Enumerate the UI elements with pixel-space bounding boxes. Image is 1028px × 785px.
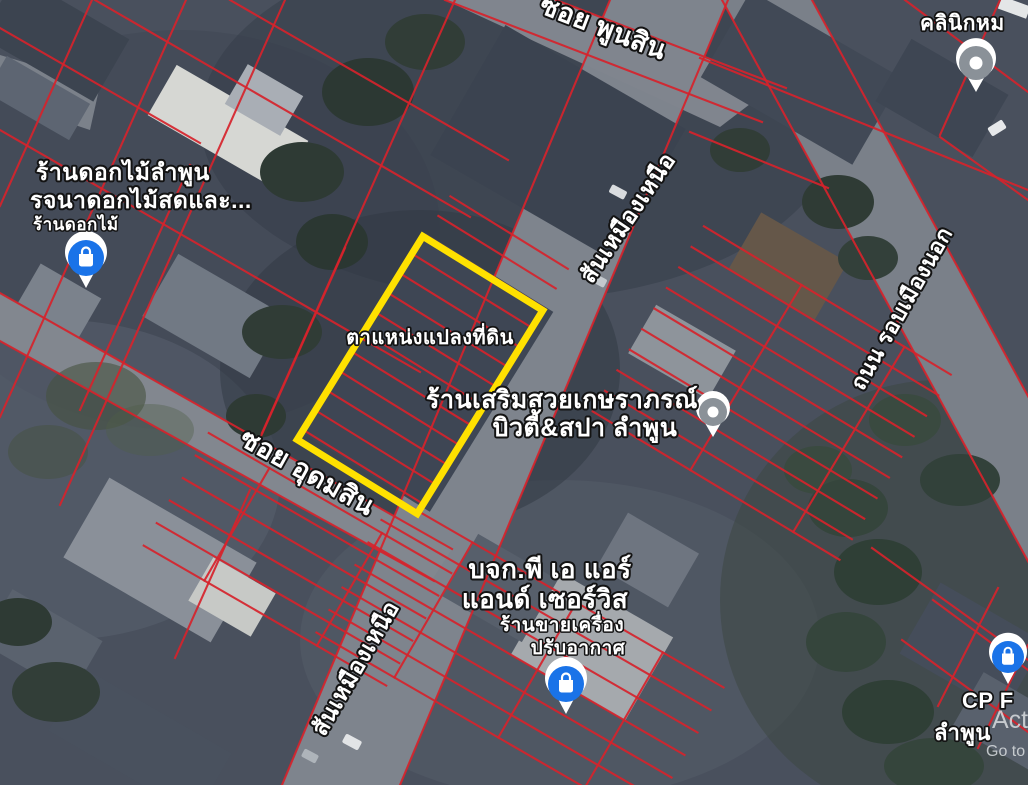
watermark-line1: Acti [992, 706, 1028, 734]
map-canvas[interactable]: ซอย พูนสิน สันเหมืองเหนือ ซอย อุดมสิน สั… [0, 0, 1028, 785]
watermark-line2: Go to [986, 743, 1025, 760]
aircon-line4: ปรับอากาศ [531, 638, 626, 659]
place-dot-icon [970, 57, 983, 70]
beauty-salon-line2: บิวตี้&สปา ลำพูน [493, 408, 678, 444]
beauty-salon-line1: ร้านเสริมสวยเกษราภรณ์ [426, 385, 698, 414]
clinic-line1: คลินิกหม [920, 12, 1005, 35]
flower-shop-line2: รจนาดอกไม้สดและ... [30, 186, 252, 213]
place-dot-icon [708, 407, 719, 418]
cp-store-line2: ลำพูน [934, 720, 991, 747]
plot-position-label: ตาแหน่งแปลงที่ดิน [346, 322, 514, 349]
aircon-line3: ร้านขายเครื่อง [500, 611, 624, 636]
flower-shop-line1: ร้านดอกไม้ลำพูน [36, 158, 210, 187]
flower-shop-line3: ร้านดอกไม้ [33, 214, 119, 234]
place-label-clinic[interactable]: คลินิกหม [920, 12, 1005, 35]
aircon-line2: แอนด์ เซอร์วิส [462, 584, 628, 614]
aircon-line1: บจก.พี เอ แอร์ [468, 554, 631, 584]
watermark: Acti Go to [986, 706, 1028, 760]
